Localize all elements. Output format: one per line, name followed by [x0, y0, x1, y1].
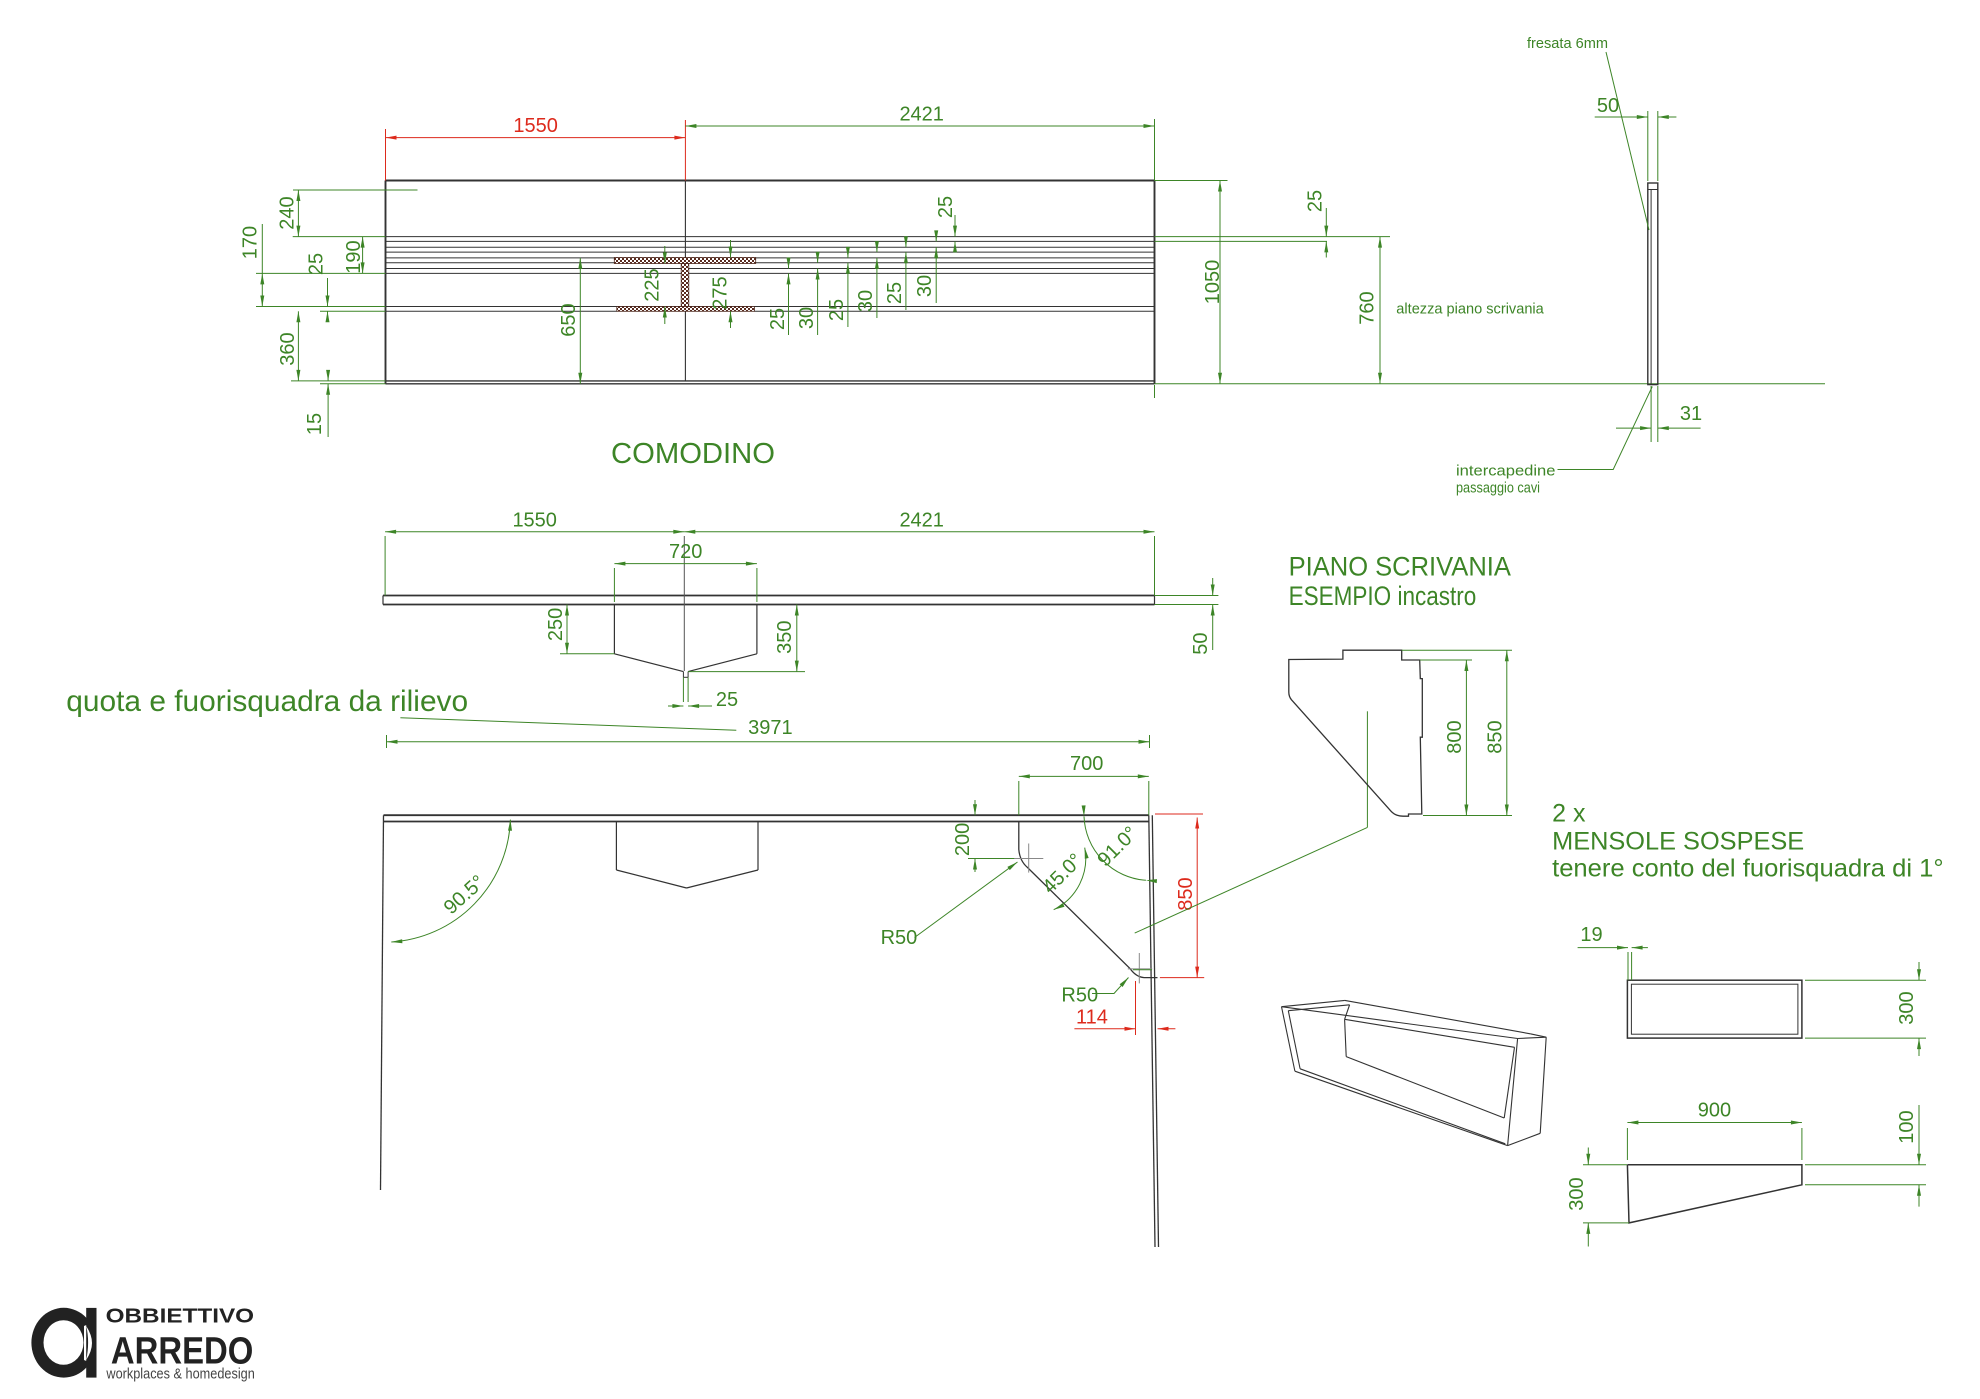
svg-text:1550: 1550 [513, 115, 558, 137]
svg-text:2 x: 2 x [1552, 800, 1586, 828]
svg-text:800: 800 [1444, 720, 1466, 753]
svg-text:240: 240 [277, 196, 299, 229]
svg-text:workplaces & homedesign: workplaces & homedesign [106, 1366, 255, 1383]
svg-text:15: 15 [304, 413, 326, 435]
svg-text:650: 650 [558, 303, 580, 336]
svg-text:25: 25 [884, 282, 906, 304]
svg-text:30: 30 [796, 307, 818, 329]
svg-text:ESEMPIO incastro: ESEMPIO incastro [1289, 581, 1477, 611]
svg-text:2421: 2421 [899, 104, 944, 126]
svg-text:300: 300 [1896, 991, 1918, 1024]
svg-text:100: 100 [1896, 1110, 1918, 1143]
svg-text:1050: 1050 [1202, 260, 1224, 305]
svg-text:190: 190 [343, 240, 365, 273]
svg-text:19: 19 [1580, 924, 1602, 946]
svg-text:25: 25 [935, 196, 957, 218]
svg-text:30: 30 [914, 275, 936, 297]
svg-text:850: 850 [1485, 720, 1507, 753]
svg-text:25: 25 [306, 253, 328, 275]
svg-text:quota e fuorisquadra da riliev: quota e fuorisquadra da rilievo [66, 685, 468, 718]
svg-text:275: 275 [710, 276, 732, 309]
svg-text:altezza piano scrivania: altezza piano scrivania [1396, 301, 1544, 318]
svg-text:fresata 6mm: fresata 6mm [1527, 35, 1608, 52]
svg-text:intercapedine: intercapedine [1456, 463, 1556, 480]
svg-text:350: 350 [774, 621, 796, 654]
svg-text:25: 25 [767, 308, 789, 330]
svg-text:30: 30 [855, 290, 877, 312]
svg-text:360: 360 [277, 332, 299, 365]
svg-text:3971: 3971 [748, 717, 793, 739]
svg-text:200: 200 [952, 823, 974, 856]
svg-text:114: 114 [1076, 1007, 1108, 1029]
svg-text:760: 760 [1357, 291, 1379, 324]
svg-text:50: 50 [1597, 95, 1619, 117]
svg-text:1550: 1550 [512, 510, 557, 532]
svg-text:900: 900 [1698, 1100, 1731, 1122]
svg-text:passaggio cavi: passaggio cavi [1456, 480, 1540, 497]
svg-text:250: 250 [545, 608, 567, 641]
svg-text:MENSOLE SOSPESE: MENSOLE SOSPESE [1552, 827, 1804, 855]
svg-text:OBBIETTIVO: OBBIETTIVO [106, 1305, 255, 1327]
svg-text:50: 50 [1190, 632, 1212, 654]
svg-text:25: 25 [1305, 190, 1327, 212]
svg-text:225: 225 [642, 268, 664, 301]
svg-text:2421: 2421 [899, 510, 944, 532]
svg-text:720: 720 [669, 541, 702, 563]
svg-text:25: 25 [826, 299, 848, 321]
svg-text:700: 700 [1070, 753, 1103, 775]
svg-text:300: 300 [1566, 1177, 1588, 1210]
svg-text:170: 170 [240, 226, 262, 259]
svg-text:tenere conto del fuorisquadra: tenere conto del fuorisquadra di 1° [1552, 855, 1944, 883]
svg-text:PIANO SCRIVANIA: PIANO SCRIVANIA [1289, 552, 1511, 582]
svg-text:COMODINO: COMODINO [611, 438, 775, 470]
svg-text:25: 25 [716, 689, 738, 711]
svg-text:31: 31 [1680, 403, 1702, 425]
svg-text:R50: R50 [1061, 985, 1098, 1007]
svg-text:R50: R50 [881, 927, 918, 949]
